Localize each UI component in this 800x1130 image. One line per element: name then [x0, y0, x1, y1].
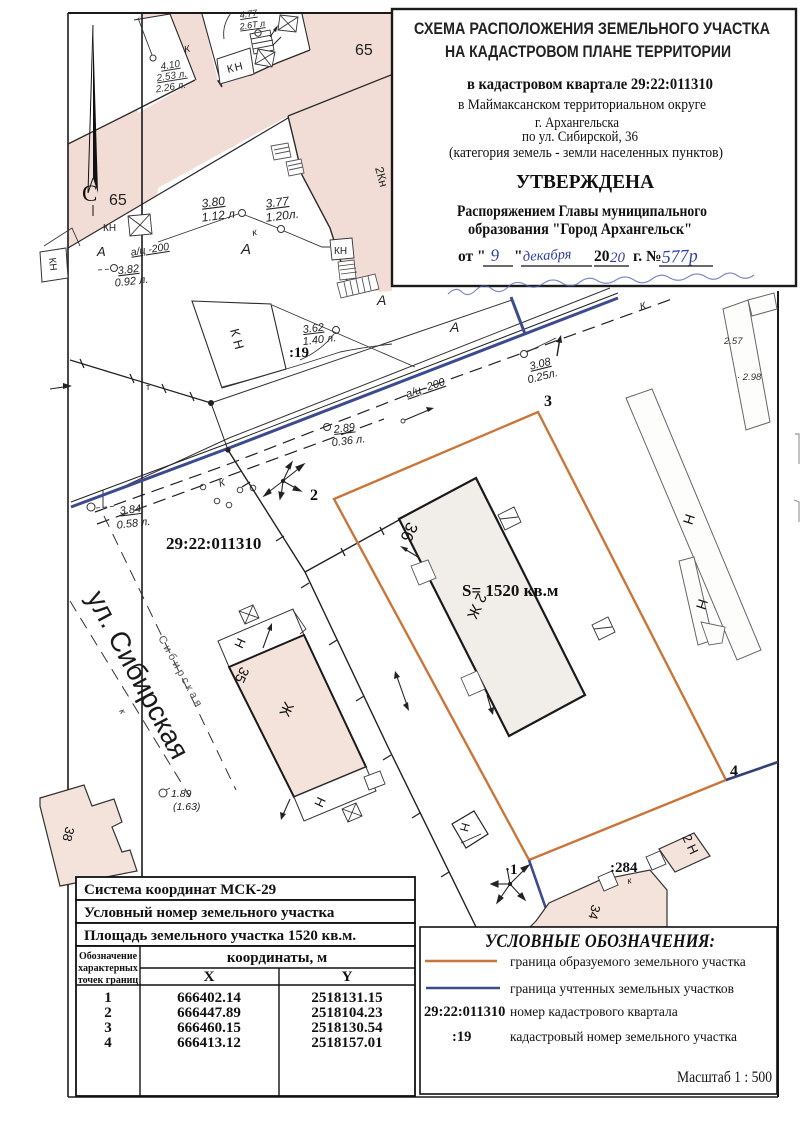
svg-text:граница образуемого земельного: граница образуемого земельного участка — [510, 954, 746, 969]
svg-text:Обозначение: Обозначение — [79, 951, 138, 962]
svg-text:666413.12: 666413.12 — [177, 1035, 241, 1051]
svg-text:29:22:011310: 29:22:011310 — [424, 1004, 505, 1020]
svg-text:666460.15: 666460.15 — [177, 1020, 241, 1036]
svg-text:65: 65 — [355, 42, 373, 59]
svg-text:КН: КН — [46, 257, 58, 271]
svg-text:20: 20 — [610, 250, 626, 266]
svg-text:А: А — [240, 241, 251, 258]
svg-text:номер кадастрового квартала: номер кадастрового квартала — [510, 1004, 678, 1019]
svg-text:Система координат МСК-29: Система координат МСК-29 — [84, 882, 276, 898]
svg-text:по ул. Сибирской, 36: по ул. Сибирской, 36 — [522, 129, 638, 145]
svg-text:г. №: г. № — [633, 248, 662, 265]
svg-text:65: 65 — [109, 192, 127, 209]
svg-text::19: :19 — [452, 1029, 471, 1045]
svg-text:т: т — [146, 382, 150, 392]
svg-text:3: 3 — [104, 1020, 112, 1036]
svg-text:3: 3 — [544, 393, 552, 410]
svg-text:в кадастровом квартале 29:22:0: в кадастровом квартале 29:22:011310 — [467, 76, 713, 93]
svg-text:С: С — [82, 181, 97, 206]
svg-text:УСЛОВНЫЕ ОБОЗНАЧЕНИЯ:: УСЛОВНЫЕ ОБОЗНАЧЕНИЯ: — [485, 931, 715, 952]
svg-text:2: 2 — [104, 1005, 112, 1021]
svg-text:декабря: декабря — [522, 246, 572, 265]
svg-text:(категория земель - земли насе: (категория земель - земли населенных пун… — [449, 145, 723, 161]
svg-text:точек границ: точек границ — [78, 975, 138, 986]
svg-text:образования "Город Архангельск: образования "Город Архангельск" — [468, 221, 692, 238]
svg-text:Условный номер земельного учас: Условный номер земельного участка — [84, 905, 335, 921]
svg-text:S= 1520 кв.м: S= 1520 кв.м — [462, 581, 559, 600]
svg-text:Масштаб 1 : 500: Масштаб 1 : 500 — [677, 1069, 772, 1086]
svg-text:2518104.23: 2518104.23 — [311, 1005, 382, 1021]
svg-text:· 2.98: · 2.98 — [737, 372, 762, 383]
svg-text:характерных: характерных — [78, 963, 138, 974]
svg-text:УТВЕРЖДЕНА: УТВЕРЖДЕНА — [516, 171, 655, 193]
svg-text:2: 2 — [310, 487, 318, 504]
svg-text:1: 1 — [104, 990, 112, 1006]
svg-text:Площадь земельного участка 152: Площадь земельного участка 1520 кв.м. — [84, 928, 356, 944]
svg-text:Y: Y — [342, 969, 353, 985]
svg-text:от ": от " — [458, 248, 486, 265]
svg-text:А: А — [96, 244, 106, 259]
svg-text::284: :284 — [610, 860, 638, 876]
svg-text:1.89: 1.89 — [171, 788, 192, 800]
svg-text:2.57: 2.57 — [723, 336, 743, 347]
svg-text:X: X — [204, 969, 215, 985]
svg-text:666447.89: 666447.89 — [177, 1005, 241, 1021]
svg-text:2518130.54: 2518130.54 — [311, 1020, 383, 1036]
svg-text:А: А — [376, 292, 386, 308]
svg-text:граница учтенных земельных уча: граница учтенных земельных участков — [510, 981, 734, 996]
svg-text:в Маймаксанском территориально: в Маймаксанском территориальном округе — [458, 97, 706, 113]
svg-text:КН: КН — [334, 246, 347, 257]
svg-text:(1.63): (1.63) — [173, 801, 200, 813]
svg-text:4: 4 — [104, 1035, 112, 1051]
svg-text:КН: КН — [103, 223, 116, 234]
svg-text:СХЕМА РАСПОЛОЖЕНИЯ ЗЕМЕЛЬНОГО: СХЕМА РАСПОЛОЖЕНИЯ ЗЕМЕЛЬНОГО УЧАСТКА — [414, 19, 770, 38]
svg-text:29:22:011310: 29:22:011310 — [166, 534, 261, 553]
svg-text:А: А — [449, 319, 459, 335]
svg-text:Распоряжением Главы муниципаль: Распоряжением Главы муниципального — [457, 203, 707, 220]
svg-text:666402.14: 666402.14 — [177, 990, 241, 1006]
svg-text:20: 20 — [594, 248, 610, 265]
svg-text:координаты, м: координаты, м — [227, 950, 327, 966]
svg-text:кадастровый номер земельного у: кадастровый номер земельного участка — [510, 1029, 737, 1044]
svg-text:НА КАДАСТРОВОМ ПЛАНЕ ТЕРРИТОРИ: НА КАДАСТРОВОМ ПЛАНЕ ТЕРРИТОРИИ — [445, 42, 731, 61]
svg-text:577р: 577р — [661, 245, 698, 267]
svg-text:2518131.15: 2518131.15 — [311, 990, 382, 1006]
svg-text:2518157.01: 2518157.01 — [311, 1035, 382, 1051]
svg-text:": " — [514, 248, 523, 265]
